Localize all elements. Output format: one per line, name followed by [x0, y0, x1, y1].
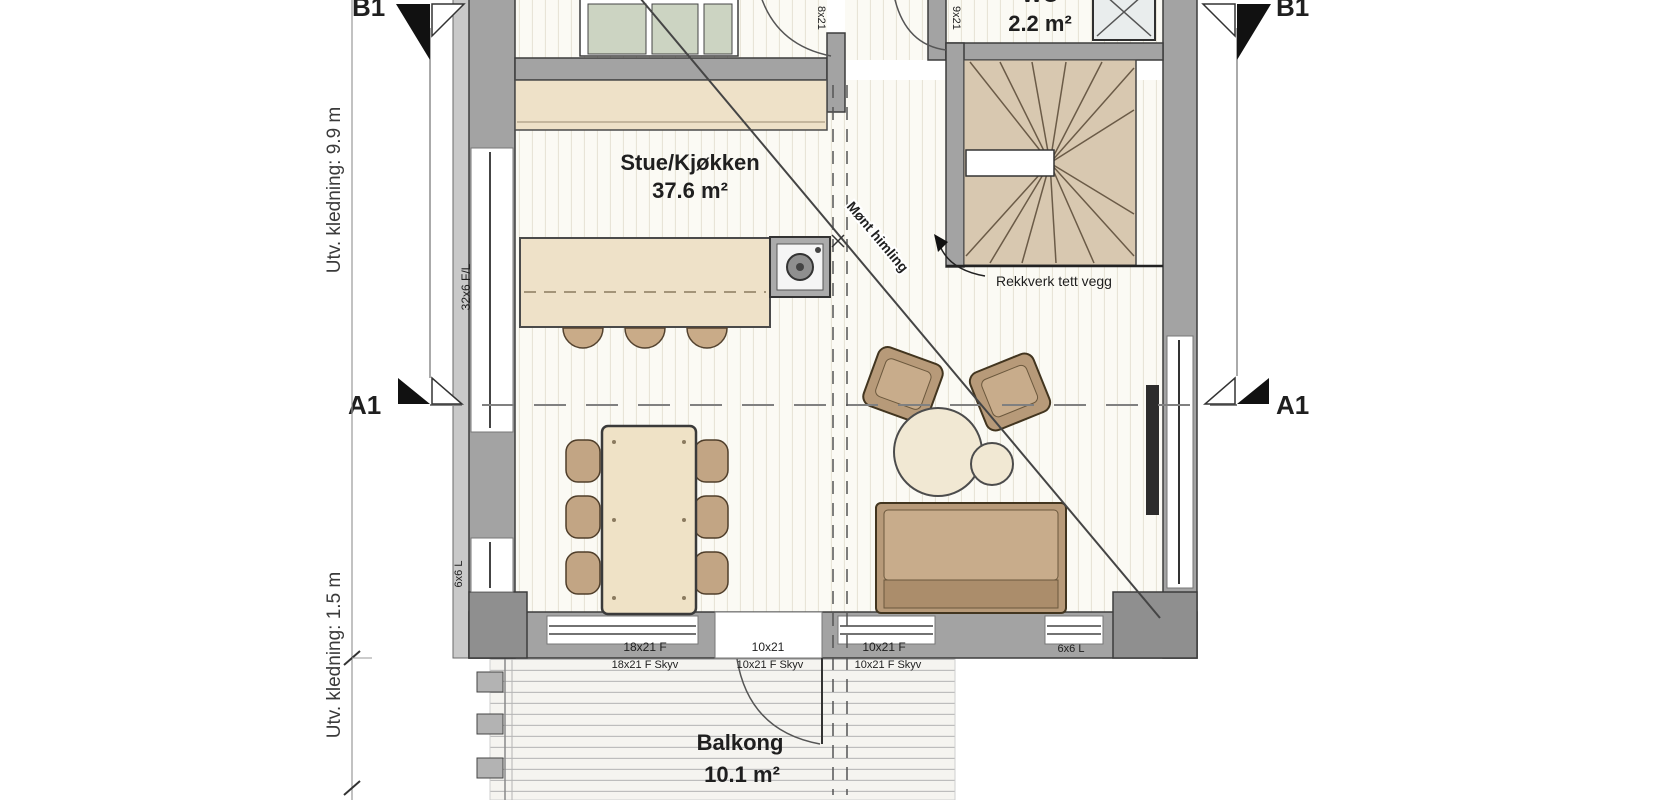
- b1-right-label: B1: [1276, 0, 1309, 22]
- balcony-door-label: 10x21: [752, 640, 785, 654]
- cabinet-module: [588, 4, 646, 54]
- a1-left-arrow: [398, 378, 430, 404]
- fireplace: [1146, 385, 1159, 515]
- wc-left-wall: [928, 0, 946, 60]
- staircase: [946, 60, 1163, 266]
- bottom-window-3: [1045, 616, 1103, 644]
- bottom-window-3-label: 6x6 L: [1058, 643, 1085, 655]
- bottom-window-2-sublabel: 10x21 F Skyv: [855, 659, 922, 671]
- shower: [1093, 0, 1155, 40]
- corner-bottom-right: [1113, 592, 1197, 658]
- wc-name: WC: [1022, 0, 1059, 7]
- railing-post: [477, 714, 503, 734]
- cooktop-knob: [815, 247, 821, 253]
- stair-left-wall: [946, 43, 964, 267]
- balcony-name: Balkong: [697, 730, 784, 755]
- bottom-window-2-label: 10x21 F: [862, 640, 905, 654]
- living-kitchen-name: Stue/Kjøkken: [620, 150, 759, 175]
- floor-plan-drawing: B1 B1 A1 A1 Utv. kledning: 9.9 m Utv. kl…: [0, 0, 1670, 800]
- railing-note: Rekkverk tett vegg: [996, 273, 1112, 289]
- side-table: [971, 443, 1013, 485]
- sofa-back: [884, 580, 1058, 608]
- balcony-area: 10.1 m²: [704, 762, 780, 787]
- a1-left-label: A1: [348, 390, 381, 420]
- left-small-window: [471, 538, 513, 592]
- living-kitchen-area: 37.6 m²: [652, 178, 728, 203]
- b1-right-arrow: [1237, 4, 1271, 60]
- dining-set: [566, 426, 728, 614]
- coffee-table: [894, 408, 982, 496]
- railing-post: [477, 758, 503, 778]
- hall-floor: [845, 0, 928, 60]
- balcony-door-sublabel: 10x21 F Skyv: [737, 659, 804, 671]
- cladding-lower-label: Utv. kledning: 1.5 m: [324, 572, 345, 739]
- a1-right-arrow-open: [1205, 378, 1235, 404]
- railing-post: [477, 672, 503, 692]
- bottom-window-1-sublabel: 18x21 F Skyv: [612, 659, 679, 671]
- a1-right-arrow: [1237, 378, 1269, 404]
- left-small-window-label: 6x6 L: [453, 561, 465, 588]
- left-tall-window: [471, 148, 513, 432]
- sofa-seat: [884, 510, 1058, 580]
- left-cladding-band: [453, 0, 469, 658]
- wc-area: 2.2 m²: [1008, 11, 1072, 36]
- cladding-upper-label: Utv. kledning: 9.9 m: [324, 107, 345, 274]
- floor-plan-page: B1 B1 A1 A1 Utv. kledning: 9.9 m Utv. kl…: [0, 0, 1670, 800]
- cabinet-module: [652, 4, 698, 54]
- dining-table: [602, 426, 696, 614]
- kitchen-top-wall: [515, 58, 827, 80]
- b1-right-arrow-open: [1203, 4, 1235, 36]
- wc-door-label: 9x21: [950, 6, 962, 30]
- wc-bottom-wall: [946, 43, 1163, 60]
- kitchen-island: [520, 238, 770, 327]
- entry-door-label: 8x21: [815, 6, 827, 30]
- wall-stub: [827, 33, 845, 112]
- bottom-window-1-label: 18x21 F: [623, 640, 666, 654]
- b1-left-arrow: [396, 4, 430, 60]
- b1-left-label: B1: [352, 0, 385, 22]
- cabinet-module: [704, 4, 732, 54]
- corner-bottom-left: [469, 592, 527, 658]
- stair-handrail: [966, 150, 1054, 176]
- burner-center: [796, 263, 804, 271]
- wc-fixture: [1093, 0, 1155, 40]
- left-tall-window-label: 32x6 F/L: [459, 263, 473, 310]
- a1-right-label: A1: [1276, 390, 1309, 420]
